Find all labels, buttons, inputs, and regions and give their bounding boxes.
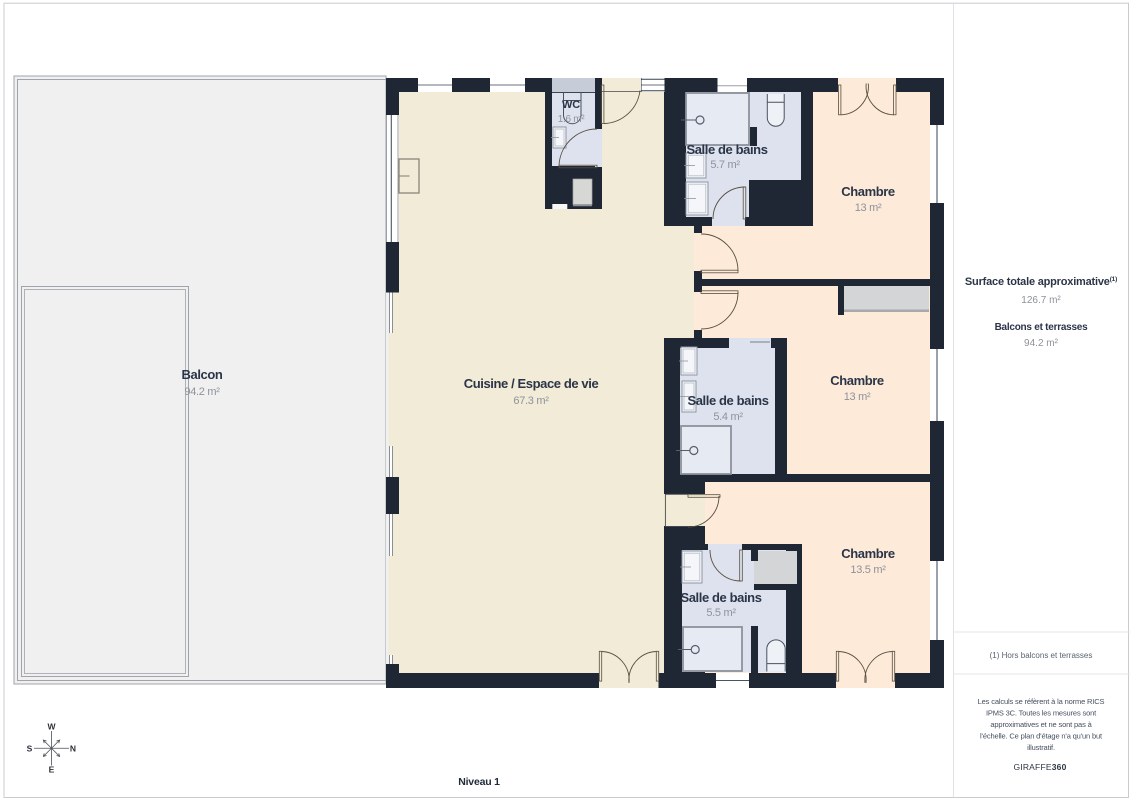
svg-text:13.5 m²: 13.5 m² [850,564,886,576]
svg-text:GIRAFFE360: GIRAFFE360 [1013,762,1066,772]
svg-text:W: W [47,722,56,732]
svg-text:Salle de bains: Salle de bains [686,142,767,157]
svg-text:94.2 m²: 94.2 m² [184,386,220,398]
svg-text:5.7 m²: 5.7 m² [710,159,740,171]
svg-text:WC: WC [562,99,580,111]
svg-text:Salle de bains: Salle de bains [687,393,768,408]
svg-text:illustratif.: illustratif. [1027,743,1055,752]
svg-text:13 m²: 13 m² [855,202,882,214]
svg-text:Salle de bains: Salle de bains [680,590,761,605]
svg-text:Niveau 1: Niveau 1 [458,776,500,788]
svg-text:Balcons et terrasses: Balcons et terrasses [995,322,1089,333]
svg-text:67.3 m²: 67.3 m² [513,395,549,407]
svg-text:126.7 m²: 126.7 m² [1021,295,1061,306]
svg-text:Les calculs se réfèrent à la n: Les calculs se réfèrent à la norme RICS [978,697,1105,706]
svg-text:(1) Hors balcons et terrasses: (1) Hors balcons et terrasses [990,651,1093,660]
svg-text:Chambre: Chambre [841,546,895,561]
svg-text:5.4 m²: 5.4 m² [713,411,743,423]
svg-text:5.5 m²: 5.5 m² [706,607,736,619]
svg-text:E: E [49,765,55,775]
svg-text:N: N [70,743,76,753]
svg-text:Surface totale approximative(1: Surface totale approximative(1) [965,276,1117,288]
svg-text:l'échelle. Ce plan d'étage n'a: l'échelle. Ce plan d'étage n'a qu'un but [980,732,1103,741]
svg-text:approximatives et ne sont pas: approximatives et ne sont pas à [990,720,1092,729]
svg-text:IPMS 3C. Toutes les mesures so: IPMS 3C. Toutes les mesures sont [986,709,1097,718]
svg-text:Chambre: Chambre [841,184,895,199]
svg-text:13 m²: 13 m² [844,391,871,403]
svg-text:94.2 m²: 94.2 m² [1024,338,1059,349]
svg-text:Chambre: Chambre [830,373,884,388]
svg-text:Balcon: Balcon [182,367,223,382]
svg-text:S: S [27,743,33,753]
svg-text:1.6 m²: 1.6 m² [558,114,586,125]
svg-text:Cuisine / Espace de vie: Cuisine / Espace de vie [464,376,599,391]
